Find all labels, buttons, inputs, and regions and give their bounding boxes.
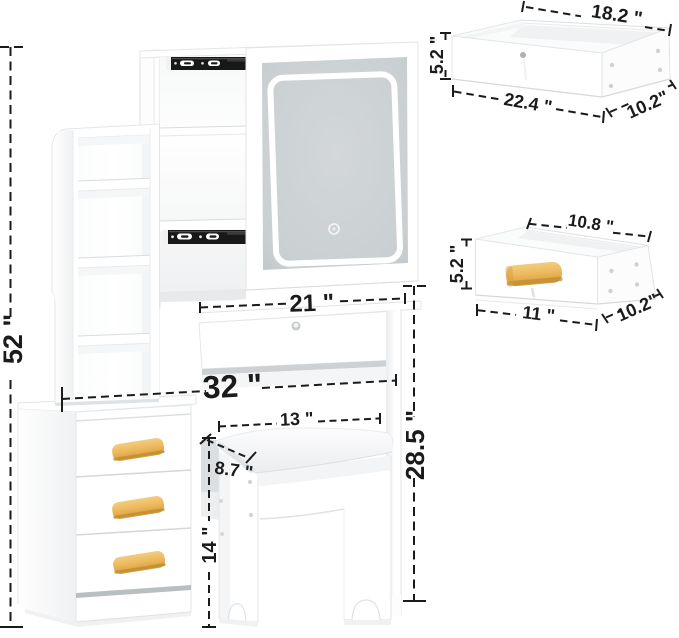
svg-text:21 ": 21 "	[289, 289, 335, 318]
svg-text:5.2 ": 5.2 "	[447, 245, 467, 284]
svg-text:28.5 ": 28.5 "	[400, 410, 430, 480]
svg-text:5.2 ": 5.2 "	[427, 36, 447, 75]
svg-text:13 ": 13 "	[280, 408, 314, 429]
svg-text:11 ": 11 "	[521, 302, 556, 326]
svg-text:52 ": 52 "	[0, 314, 28, 364]
svg-text:32 ": 32 "	[202, 366, 263, 405]
svg-text:14 ": 14 "	[199, 526, 221, 563]
